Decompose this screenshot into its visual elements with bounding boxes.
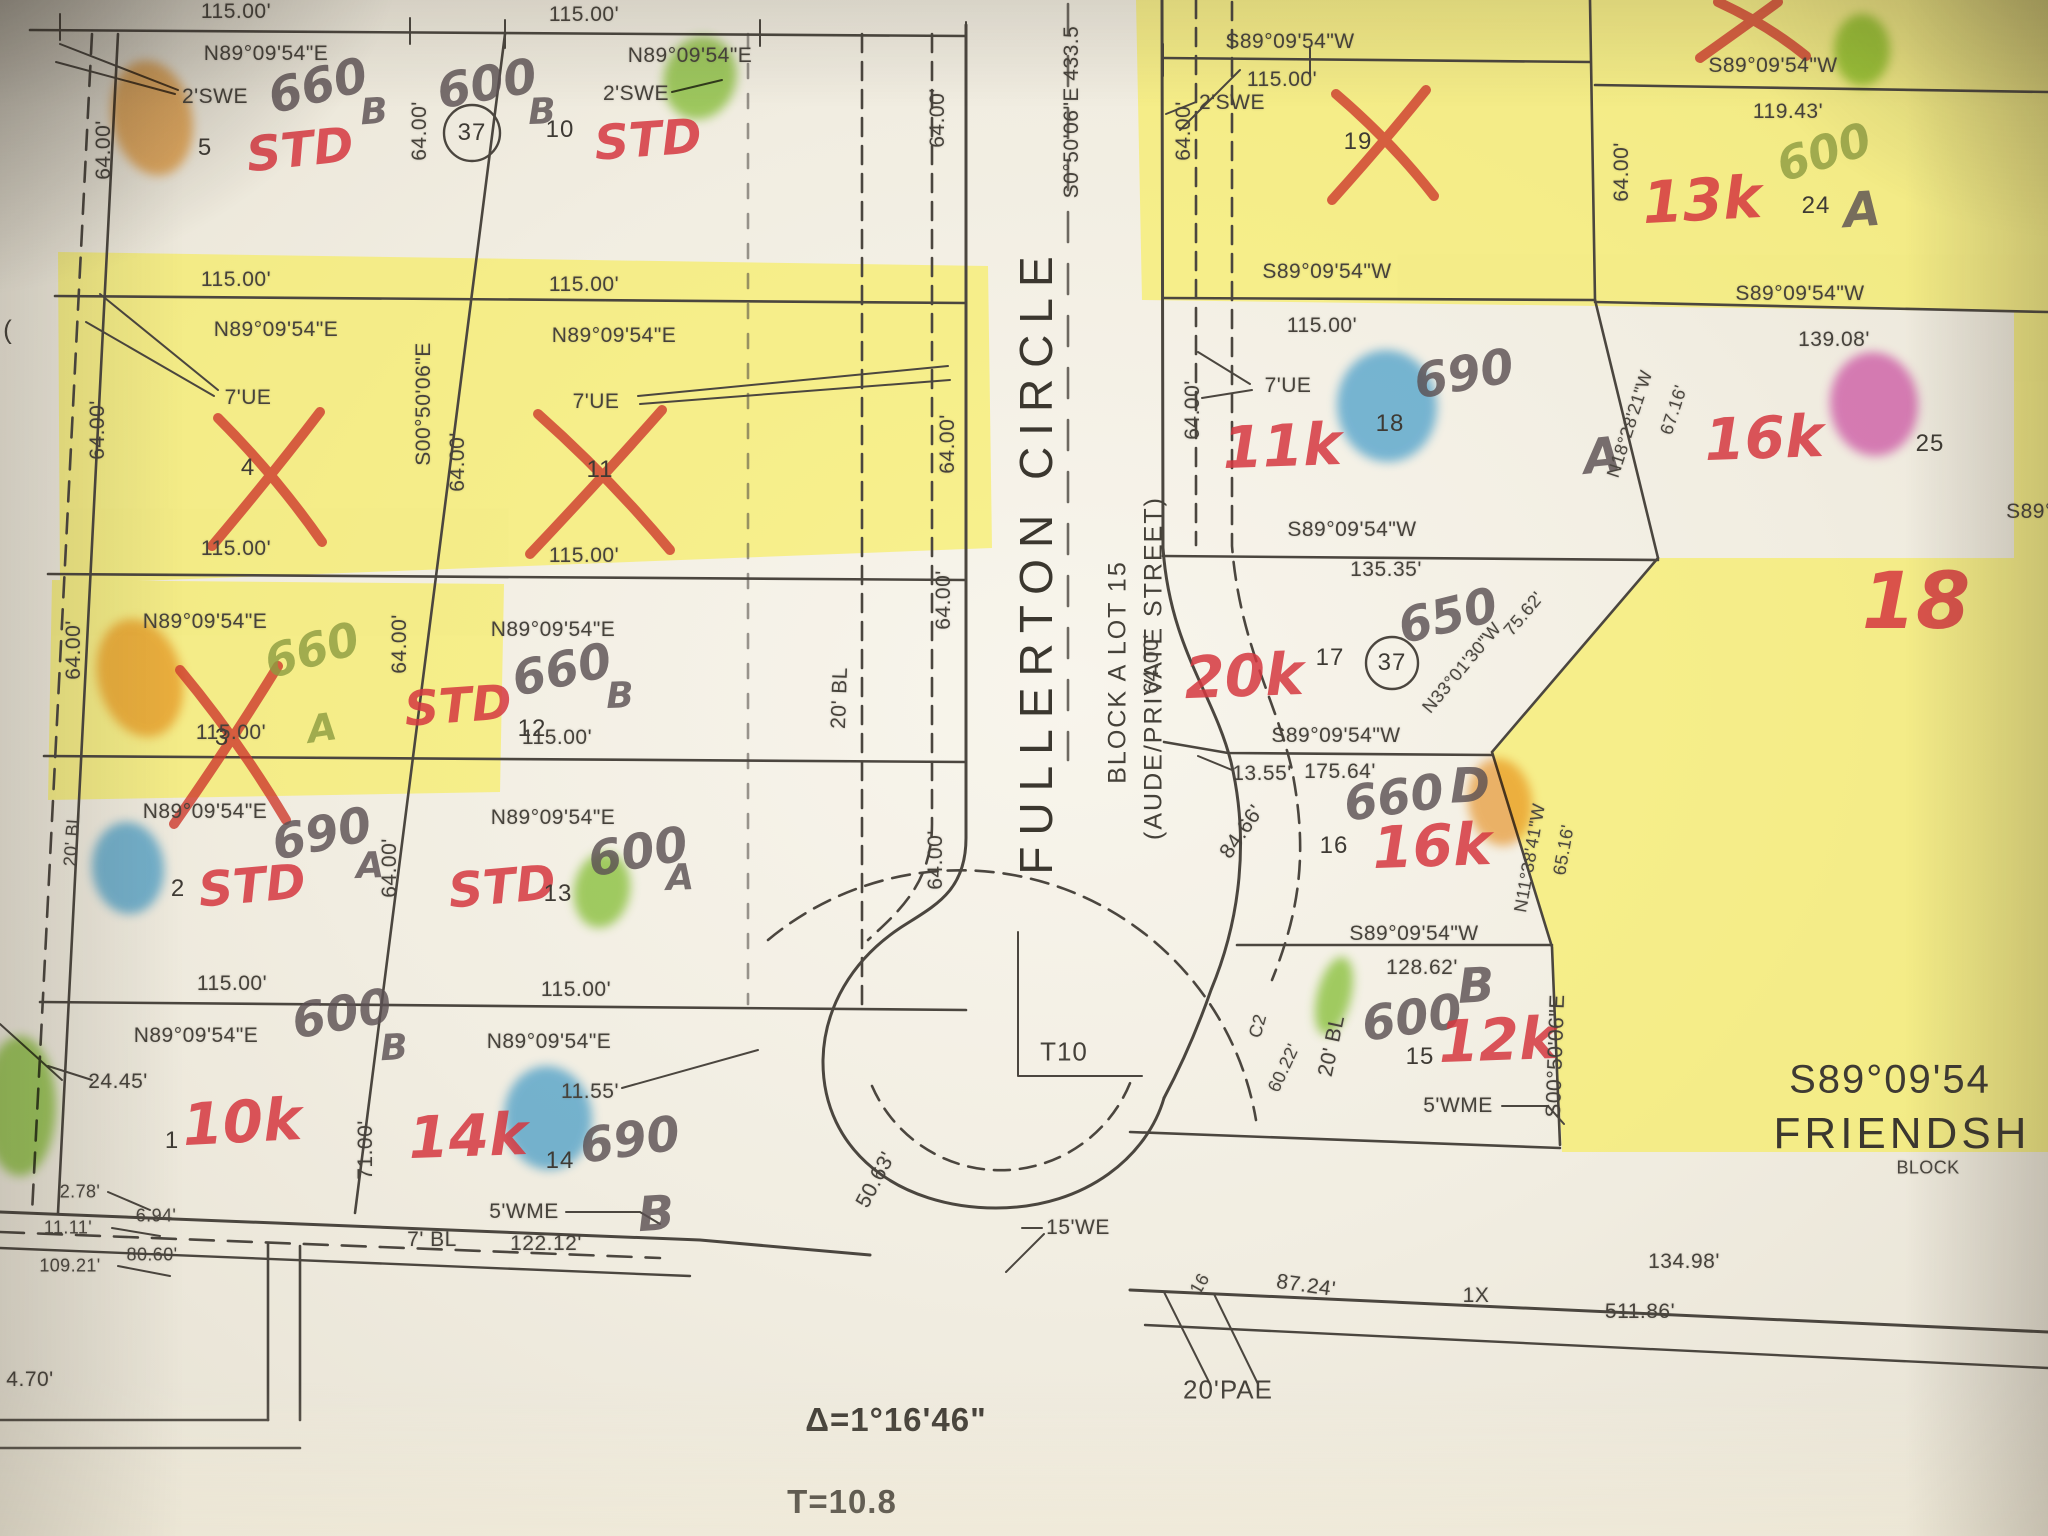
dim-20bl-lot15: 20' BL	[1314, 1013, 1350, 1079]
dim-13498: 134.98'	[1648, 1250, 1720, 1274]
dim-64-div-row1: 64.00'	[408, 101, 432, 161]
dim-1155-lot14: 11.55'	[561, 1080, 619, 1104]
dim-64-road-row4: 64.00'	[924, 830, 948, 890]
pencil-a-lot2: A	[355, 845, 384, 887]
easement-15we: 15'WE	[1046, 1216, 1110, 1240]
dim-64-w-row1: 64.00'	[92, 120, 116, 180]
dim-13908-lot25: 139.08'	[1798, 328, 1870, 352]
bearing-s005006-divider: S00°50'06"E	[412, 342, 436, 465]
dim-115-lot3-bottom: 115.00'	[196, 721, 266, 745]
pencil-d-lot16: D	[1449, 757, 1491, 814]
lot-number-13: 13	[544, 880, 573, 908]
easement-2swe-lot10: 2'SWE	[603, 82, 669, 106]
marker-12k-lot15: 12k	[1437, 1004, 1559, 1076]
dim-64-w-row3: 64.00'	[62, 620, 86, 680]
dim-20bl-lot12: 20' BL	[827, 667, 853, 730]
dim-64-road-r-row2: 64.00'	[1181, 380, 1205, 440]
bearing-lot16: S89°09'54"W	[1271, 724, 1400, 748]
pencil-690-lot18: 690	[1410, 338, 1518, 411]
green-pencil-a-lot3: A	[304, 704, 339, 752]
dim-115-lot19: 115.00'	[1247, 68, 1317, 92]
pencil-b-lot14: B	[636, 1185, 676, 1243]
pencil-660-lot12: 660	[507, 632, 617, 708]
bearing-lot11: N89°09'54"E	[552, 324, 677, 348]
centerline-bearing: S0°50'06"E 433.5	[1060, 26, 1084, 199]
dim-6516: 65.16'	[1549, 823, 1579, 877]
lot-number-14: 14	[546, 1147, 575, 1175]
dim-7562: 75.62'	[1500, 588, 1549, 640]
dim-5063-curve: 50.63'	[851, 1148, 900, 1212]
easement-5wme-lot14: 5'WME	[489, 1200, 559, 1224]
lot-number-5: 5	[198, 134, 212, 162]
marker-std-lot10: STD	[593, 108, 704, 171]
dim-8060: 80.60'	[127, 1245, 178, 1266]
marker-std-lot12: STD	[403, 674, 514, 737]
bearing-lot1: N89°09'54"E	[134, 1024, 259, 1048]
dim-1355-lot16: 13.55'	[1232, 762, 1292, 786]
curve-label-c2: C2	[1245, 1012, 1271, 1040]
pencil-b-lot1: B	[379, 1027, 409, 1069]
dim-115-lot11-top: 115.00'	[549, 273, 619, 297]
easement-5wme-lot15: 5'WME	[1423, 1094, 1493, 1118]
pencil-a-lot13: A	[665, 857, 694, 899]
lot-number-4: 4	[241, 454, 255, 482]
pencil-b-lot12: B	[606, 675, 635, 717]
dim-2445-lot1: 24.45'	[88, 1070, 148, 1094]
bottom-block-partial: BLOCK	[1896, 1158, 1959, 1179]
bearing-lot19: S89°09'54"W	[1225, 30, 1354, 54]
marker-10k-lot1: 10k	[181, 1085, 304, 1159]
pencil-a-lot24: A	[1842, 181, 1883, 239]
street-name-fullerton-circle: FULLERTON CIRCLE	[1009, 245, 1063, 874]
dim-64-road-r-row3: 64.00'	[1140, 634, 1164, 694]
pencil-600-lot10: 600	[433, 48, 541, 121]
dim-694: 6.94'	[136, 1206, 176, 1227]
cut-bearing-right-edge: S89°	[2006, 500, 2048, 524]
bearing-lot3: N89°09'54"E	[143, 610, 268, 634]
easement-2swe-lot19: 2'SWE	[1199, 91, 1265, 115]
dim-20bl-lot2: 20' BL	[60, 813, 85, 867]
curve-delta: Δ=1°16'46"	[805, 1401, 986, 1439]
pencil-690-lot14: 690	[576, 1105, 683, 1174]
block-circle-37-left: 37	[458, 119, 487, 147]
easement-7ue-lot18: 7'UE	[1265, 374, 1312, 398]
bottom-bearing-partial: S89°09'54	[1789, 1058, 1991, 1103]
bearing-lot2: N89°09'54"E	[143, 800, 268, 824]
dim-115-lot12-bottom: 115.00'	[522, 726, 592, 750]
dim-64-road-row2: 64.00'	[936, 414, 960, 474]
dim-115-lot13-bottom: 115.00'	[541, 978, 611, 1002]
dim-64-w-row2: 64.00'	[86, 400, 110, 460]
dim-470: 4.70'	[6, 1368, 53, 1392]
easement-20pae: 20'PAE	[1183, 1375, 1273, 1406]
marker-20k-lot17: 20k	[1183, 640, 1305, 712]
label-1x: 1X	[1463, 1284, 1490, 1308]
dim-64-road-row3: 64.00'	[932, 570, 956, 630]
dim-12212: 122.12'	[510, 1232, 582, 1256]
bearing-n113841: N11°38'41"W	[1510, 802, 1550, 914]
dim-64-road-r-row1: 64.00'	[1172, 101, 1196, 161]
curve-label-16: 16	[1186, 1270, 1215, 1299]
lot-number-2: 2	[171, 875, 185, 903]
lot-number-19: 19	[1344, 128, 1373, 156]
bearing-s005006-lot15: S00°50'06"E	[1542, 994, 1570, 1118]
bearing-lot17: S89°09'54"W	[1287, 518, 1416, 542]
marker-13k-lot24: 13k	[1641, 163, 1764, 237]
curve-tangent-partial: T=10.8	[787, 1483, 897, 1521]
bearing-lot15: S89°09'54"W	[1349, 922, 1478, 946]
easement-7ue-lot11: 7'UE	[573, 390, 620, 414]
lot-number-17: 17	[1316, 644, 1345, 672]
dim-8724: 87.24'	[1275, 1270, 1337, 1302]
bearing-lot10: N89°09'54"E	[628, 44, 753, 68]
dim-115-lot10-top: 115.00'	[549, 3, 619, 27]
dim-71-div-row5: 71.00'	[354, 1120, 378, 1180]
dim-13535-lot17: 135.35'	[1350, 558, 1422, 582]
marker-std-lot13: STD	[446, 854, 558, 919]
dim-64-road-row1: 64.00'	[926, 88, 950, 148]
dim-115-lot4-bottom: 115.00'	[201, 537, 271, 561]
lot-number-15: 15	[1406, 1043, 1435, 1071]
map-labels: 115.00'115.00'N89°09'54"EN89°09'54"E2'SW…	[0, 0, 2048, 1536]
dim-1111: 11.11'	[44, 1218, 92, 1239]
dim-64-div-row3: 64.00'	[388, 614, 412, 674]
dim-278: 2.78'	[60, 1182, 100, 1203]
bottom-street-friendship-partial: FRIENDSH	[1774, 1109, 2031, 1159]
bearing-lot13: N89°09'54"E	[491, 806, 616, 830]
lot-number-18: 18	[1376, 410, 1405, 438]
dim-64-lot24: 64.00'	[1610, 142, 1634, 202]
bearing-lot4: N89°09'54"E	[214, 318, 339, 342]
marker-18k-partial: 18	[1862, 557, 1971, 647]
lot-number-1: 1	[165, 1127, 179, 1155]
marker-16k-lot25: 16k	[1703, 402, 1825, 474]
street-block-note: BLOCK A LOT 15	[1104, 560, 1133, 783]
dim-115-lot4-top: 115.00'	[201, 268, 271, 292]
dim-11943-lot24: 119.43'	[1753, 100, 1823, 124]
pencil-b-lot10: B	[528, 91, 557, 133]
dim-12862-lot15: 128.62'	[1386, 956, 1458, 980]
dim-6716: 67.16'	[1656, 383, 1692, 438]
bearing-lot18: S89°09'54"W	[1262, 260, 1391, 284]
bearing-n182821: N18°28'21"W	[1603, 368, 1657, 481]
dim-64-div-row2: 64.00'	[446, 432, 470, 492]
dim-7bl-street: 7' BL	[407, 1228, 457, 1252]
marker-std-lot5: STD	[244, 117, 356, 184]
dim-51186: 511.86'	[1605, 1300, 1675, 1324]
bearing-lot25: S89°09'54"W	[1735, 282, 1864, 306]
marker-16k-lot16: 16k	[1371, 810, 1493, 882]
easement-2swe-lot5: 2'SWE	[182, 85, 248, 109]
green-pencil-660-lot3: 660	[258, 611, 365, 689]
pencil-b-lot5: B	[359, 91, 389, 134]
bearing-lot14: N89°09'54"E	[487, 1030, 612, 1054]
marker-14k-lot14: 14k	[407, 1100, 529, 1172]
block-circle-37-right: 37	[1378, 649, 1407, 677]
dim-6022-curve: 60.22'	[1264, 1041, 1305, 1096]
lot-number-11: 11	[587, 456, 614, 484]
dim-115-lot11-bottom: 115.00'	[549, 544, 619, 568]
easement-7ue-lot4: 7'UE	[225, 386, 272, 410]
lot-number-24: 24	[1802, 192, 1831, 220]
marker-11k-lot18: 11k	[1221, 410, 1343, 482]
dim-115-lot2-bottom: 115.00'	[197, 972, 267, 996]
dim-10921: 109.21'	[39, 1256, 100, 1277]
label-t10: T10	[1040, 1037, 1088, 1068]
plat-map-photo: 115.00'115.00'N89°09'54"EN89°09'54"E2'SW…	[0, 0, 2048, 1536]
dim-115-lot5-top: 115.00'	[201, 0, 271, 24]
dim-115-lot18: 115.00'	[1287, 314, 1357, 338]
lot-number-25: 25	[1916, 430, 1945, 458]
dim-8466-curve: 84.66'	[1215, 801, 1269, 864]
lot-number-16: 16	[1320, 832, 1349, 860]
bearing-lot24: S89°09'54"W	[1708, 54, 1837, 78]
cut-paren-left-edge: (	[3, 315, 13, 346]
